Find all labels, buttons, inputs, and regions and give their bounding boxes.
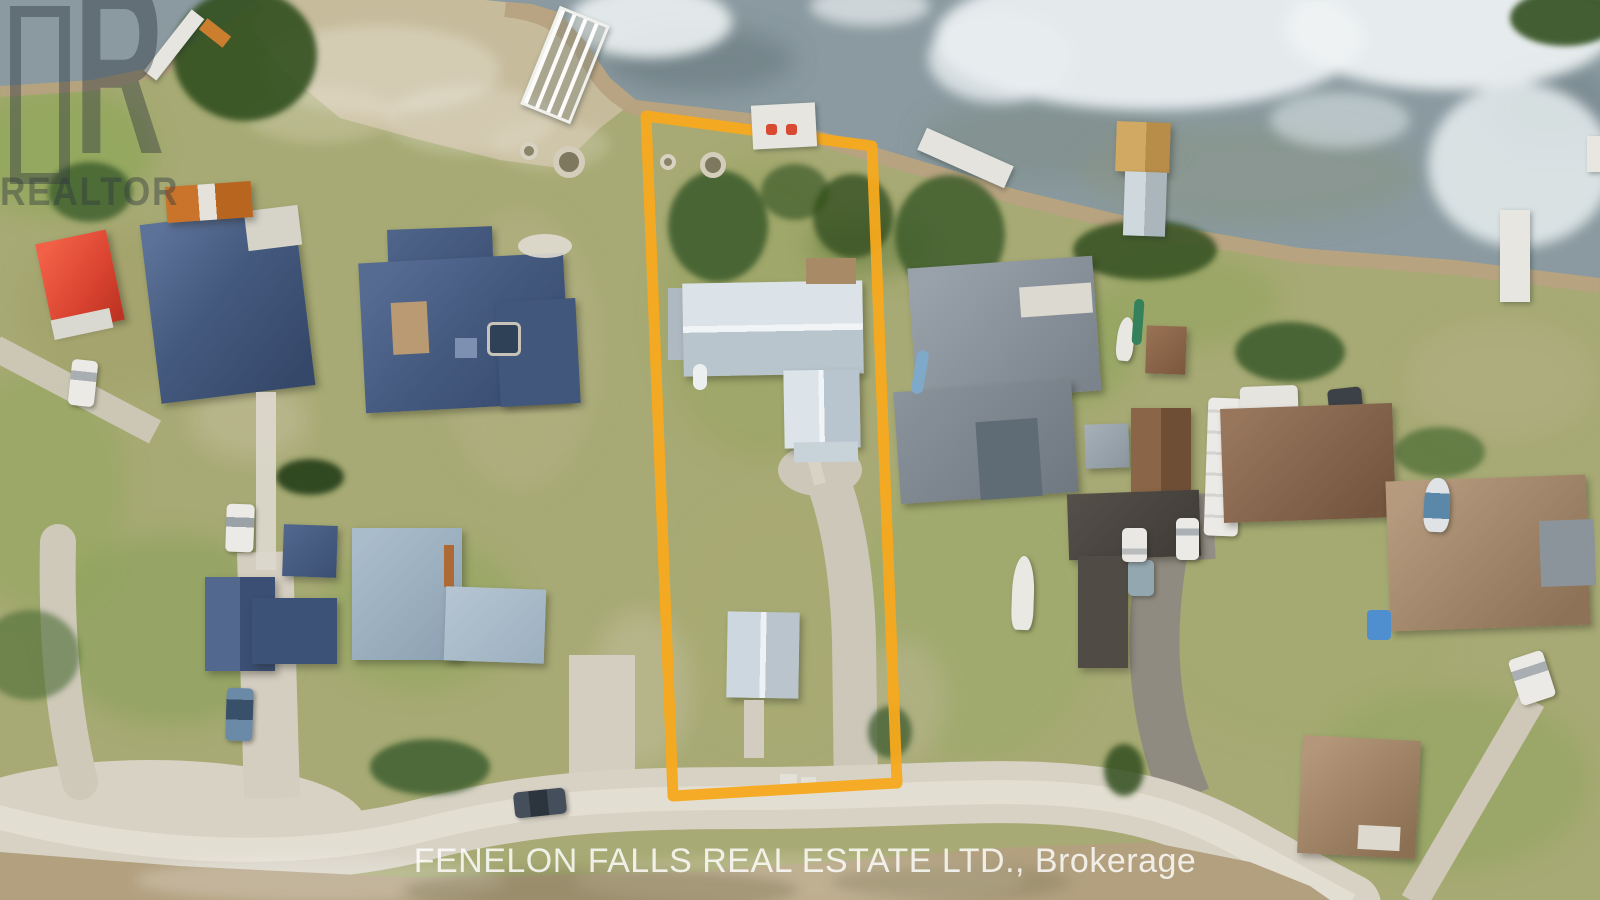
listing-dock: [751, 102, 817, 149]
muskoka-chair-1: [766, 124, 777, 135]
aerial-photo: R REALTOR FENELON FALLS REAL ESTATE LTD.…: [0, 0, 1600, 900]
property-boundary: [646, 116, 897, 796]
brokerage-watermark-text: FENELON FALLS REAL ESTATE LTD., Brokerag…: [5, 842, 1600, 881]
muskoka-chair-2: [786, 124, 797, 135]
